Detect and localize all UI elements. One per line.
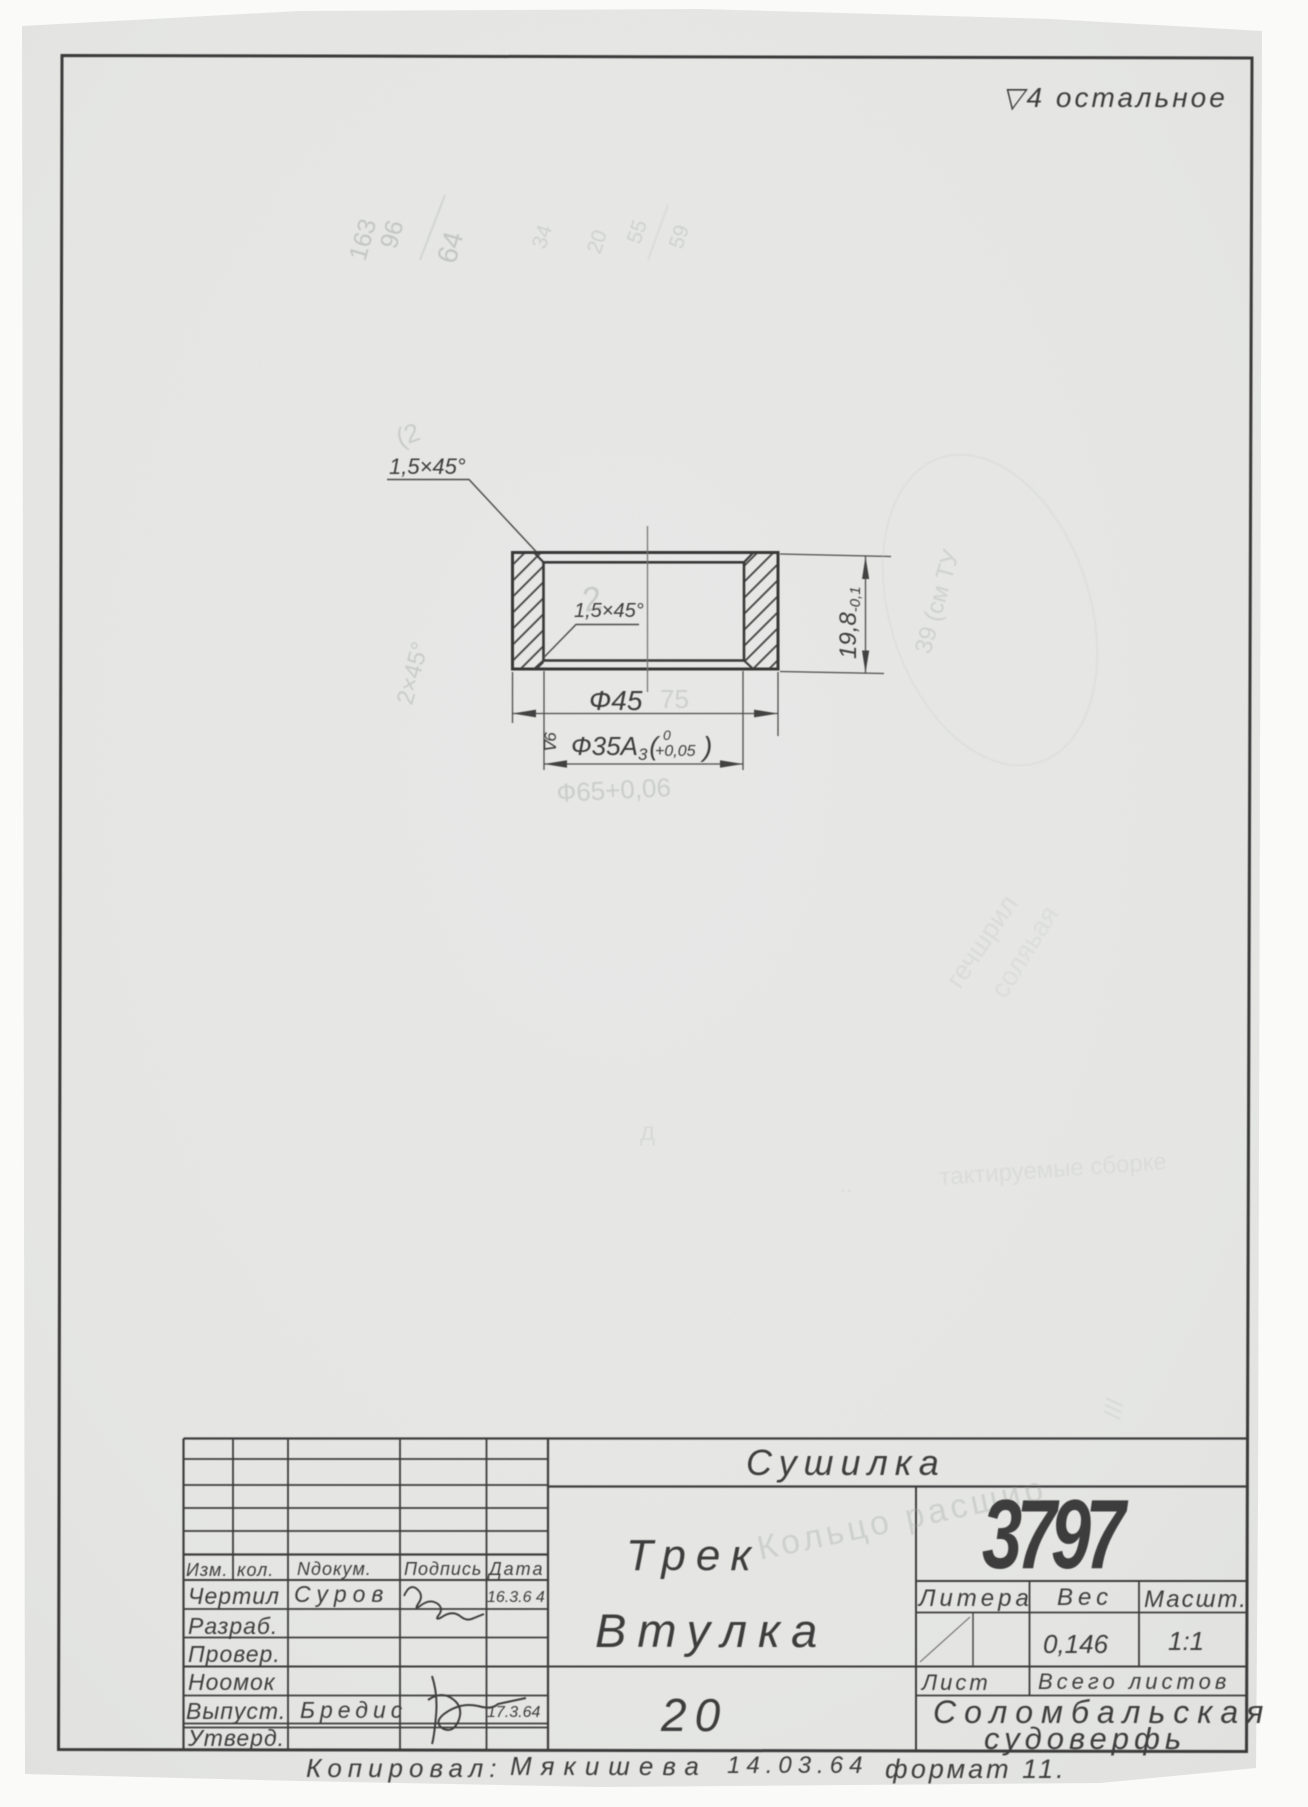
svg-text:Литера: Литера bbox=[917, 1585, 1033, 1612]
svg-text:Провер.: Провер. bbox=[188, 1641, 281, 1667]
svg-text:1:1: 1:1 bbox=[1168, 1626, 1204, 1656]
svg-text:Выпуст.: Выпуст. bbox=[186, 1698, 286, 1724]
svg-text:Ф65+0,06: Ф65+0,06 bbox=[556, 772, 672, 808]
svg-text:0,146: 0,146 bbox=[1043, 1629, 1109, 1659]
svg-text:Втулка: Втулка bbox=[595, 1604, 828, 1657]
svg-text:Лист: Лист bbox=[920, 1670, 991, 1695]
svg-text:3797: 3797 bbox=[982, 1480, 1129, 1590]
svg-text:▽4 остальное: ▽4 остальное bbox=[1002, 82, 1228, 113]
svg-text:∇6: ∇6 bbox=[541, 732, 560, 753]
svg-text:формат 11.: формат 11. bbox=[885, 1754, 1067, 1784]
svg-text:20: 20 bbox=[660, 1689, 728, 1741]
svg-text:Подпись: Подпись bbox=[404, 1559, 482, 1579]
svg-text:Сушилка: Сушилка bbox=[746, 1442, 946, 1483]
svg-text:Утверд.: Утверд. bbox=[187, 1725, 285, 1751]
svg-text:+0,05: +0,05 bbox=[655, 743, 696, 760]
svg-text:0: 0 bbox=[663, 727, 671, 743]
svg-text:д: д bbox=[640, 1116, 655, 1146]
svg-text:16.3.6 4: 16.3.6 4 bbox=[487, 1589, 545, 1606]
svg-text:Разраб.: Разраб. bbox=[188, 1613, 278, 1639]
svg-text:Изм.: Изм. bbox=[186, 1560, 228, 1580]
svg-text:Чертил: Чертил bbox=[188, 1583, 280, 1609]
svg-text:75: 75 bbox=[660, 684, 689, 714]
svg-text:судоверфь: судоверфь bbox=[984, 1721, 1186, 1756]
svg-text:Бредис: Бредис bbox=[300, 1697, 407, 1723]
svg-text:Копировал:: Копировал: bbox=[306, 1753, 503, 1783]
svg-text:Nдокум.: Nдокум. bbox=[297, 1559, 372, 1579]
svg-text:Всего листов: Всего листов bbox=[1038, 1669, 1230, 1694]
svg-text:1,5×45°: 1,5×45° bbox=[389, 454, 466, 479]
svg-text:кол.: кол. bbox=[237, 1560, 274, 1580]
svg-text:Дата: Дата bbox=[487, 1559, 545, 1579]
svg-text:14.03.64: 14.03.64 bbox=[727, 1752, 868, 1779]
svg-text:Масшт.: Масшт. bbox=[1144, 1586, 1248, 1613]
svg-text:Мякишева: Мякишева bbox=[510, 1751, 708, 1781]
svg-text:Суров: Суров bbox=[294, 1581, 389, 1607]
svg-text:Трек: Трек bbox=[626, 1531, 761, 1580]
svg-text:..: .. bbox=[840, 1172, 852, 1197]
svg-text:1,5×45°: 1,5×45° bbox=[574, 600, 644, 622]
svg-text:Вес: Вес bbox=[1057, 1584, 1113, 1611]
svg-text:Ноомок: Ноомок bbox=[188, 1669, 276, 1695]
svg-text:Ф45: Ф45 bbox=[589, 685, 643, 716]
